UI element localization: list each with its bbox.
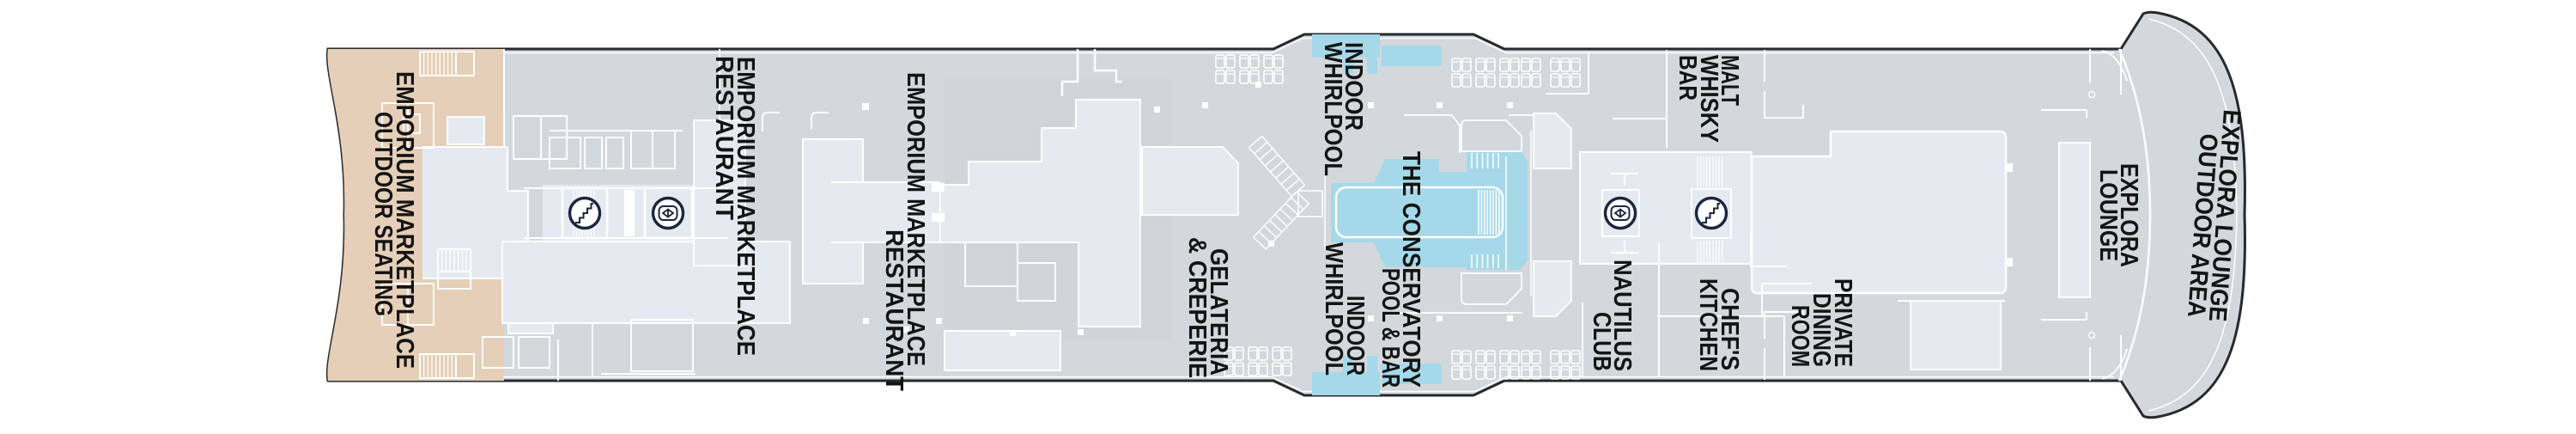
svg-text:BAR: BAR (1674, 55, 1701, 101)
svg-text:WHIRLPOOL: WHIRLPOOL (1320, 242, 1347, 376)
svg-text:KITCHEN: KITCHEN (1694, 278, 1722, 371)
svg-text:& CREPERIE: & CREPERIE (1183, 237, 1211, 378)
svg-text:POOL & BAR: POOL & BAR (1376, 268, 1404, 388)
svg-text:OUTDOOR SEATING: OUTDOOR SEATING (369, 112, 397, 316)
svg-text:ROOM: ROOM (1786, 305, 1814, 367)
svg-text:RESTAURANT: RESTAURANT (710, 56, 738, 220)
svg-text:RESTAURANT: RESTAURANT (880, 229, 908, 391)
svg-text:LOUNGE: LOUNGE (2094, 169, 2122, 261)
svg-text:CLUB: CLUB (1588, 312, 1615, 371)
svg-text:WHIRLPOOL: WHIRLPOOL (1319, 42, 1346, 176)
